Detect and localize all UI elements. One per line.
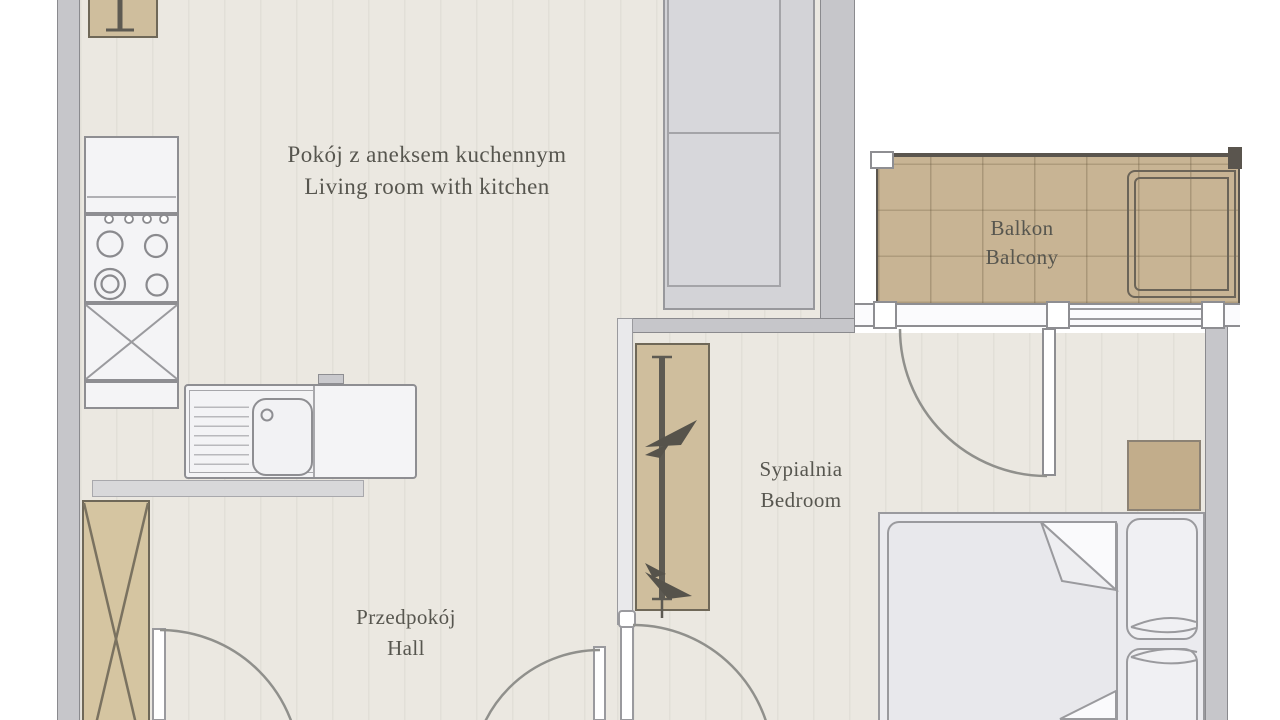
duvet-folds — [1041, 522, 1116, 719]
pillow-creases — [1131, 618, 1197, 663]
balcony-door-arc — [900, 329, 1047, 476]
bedroom-label-pl: Sypialnia — [760, 457, 843, 482]
linework-overlay — [0, 0, 1280, 720]
bedroom-door-arc — [633, 625, 773, 720]
hall-label-en: Hall — [387, 636, 425, 661]
hall-left-door-arc — [160, 630, 300, 720]
balcony-label-pl: Balkon — [990, 216, 1053, 241]
window-glazing — [1070, 309, 1201, 319]
bedroom-label-en: Bedroom — [761, 488, 842, 513]
living-room-label-en: Living room with kitchen — [304, 174, 549, 200]
stove-burners — [95, 232, 168, 300]
floor-plan: Pokój z aneksem kuchennym Living room wi… — [0, 0, 1280, 720]
hall-left-door-leaf — [153, 629, 165, 720]
bedroom-door-hinge — [619, 611, 635, 627]
hall-middle-door-leaf — [594, 647, 605, 720]
corner-cabinet-x-lines — [86, 305, 177, 379]
hall-middle-door-arc — [472, 650, 600, 720]
hall-label-pl: Przedpokój — [356, 605, 456, 630]
living-room-label-pl: Pokój z aneksem kuchennym — [288, 142, 567, 168]
hall-wardrobe-x-lines — [84, 503, 148, 720]
balcony-door-leaf — [1043, 329, 1055, 475]
balcony-label-en: Balcony — [986, 245, 1059, 270]
wardrobe-hangers — [645, 420, 697, 599]
cabinet-symbol — [106, 0, 134, 30]
basin-faucet — [262, 410, 273, 421]
stove-knobs — [105, 215, 168, 223]
bedroom-door-leaf — [621, 627, 633, 720]
